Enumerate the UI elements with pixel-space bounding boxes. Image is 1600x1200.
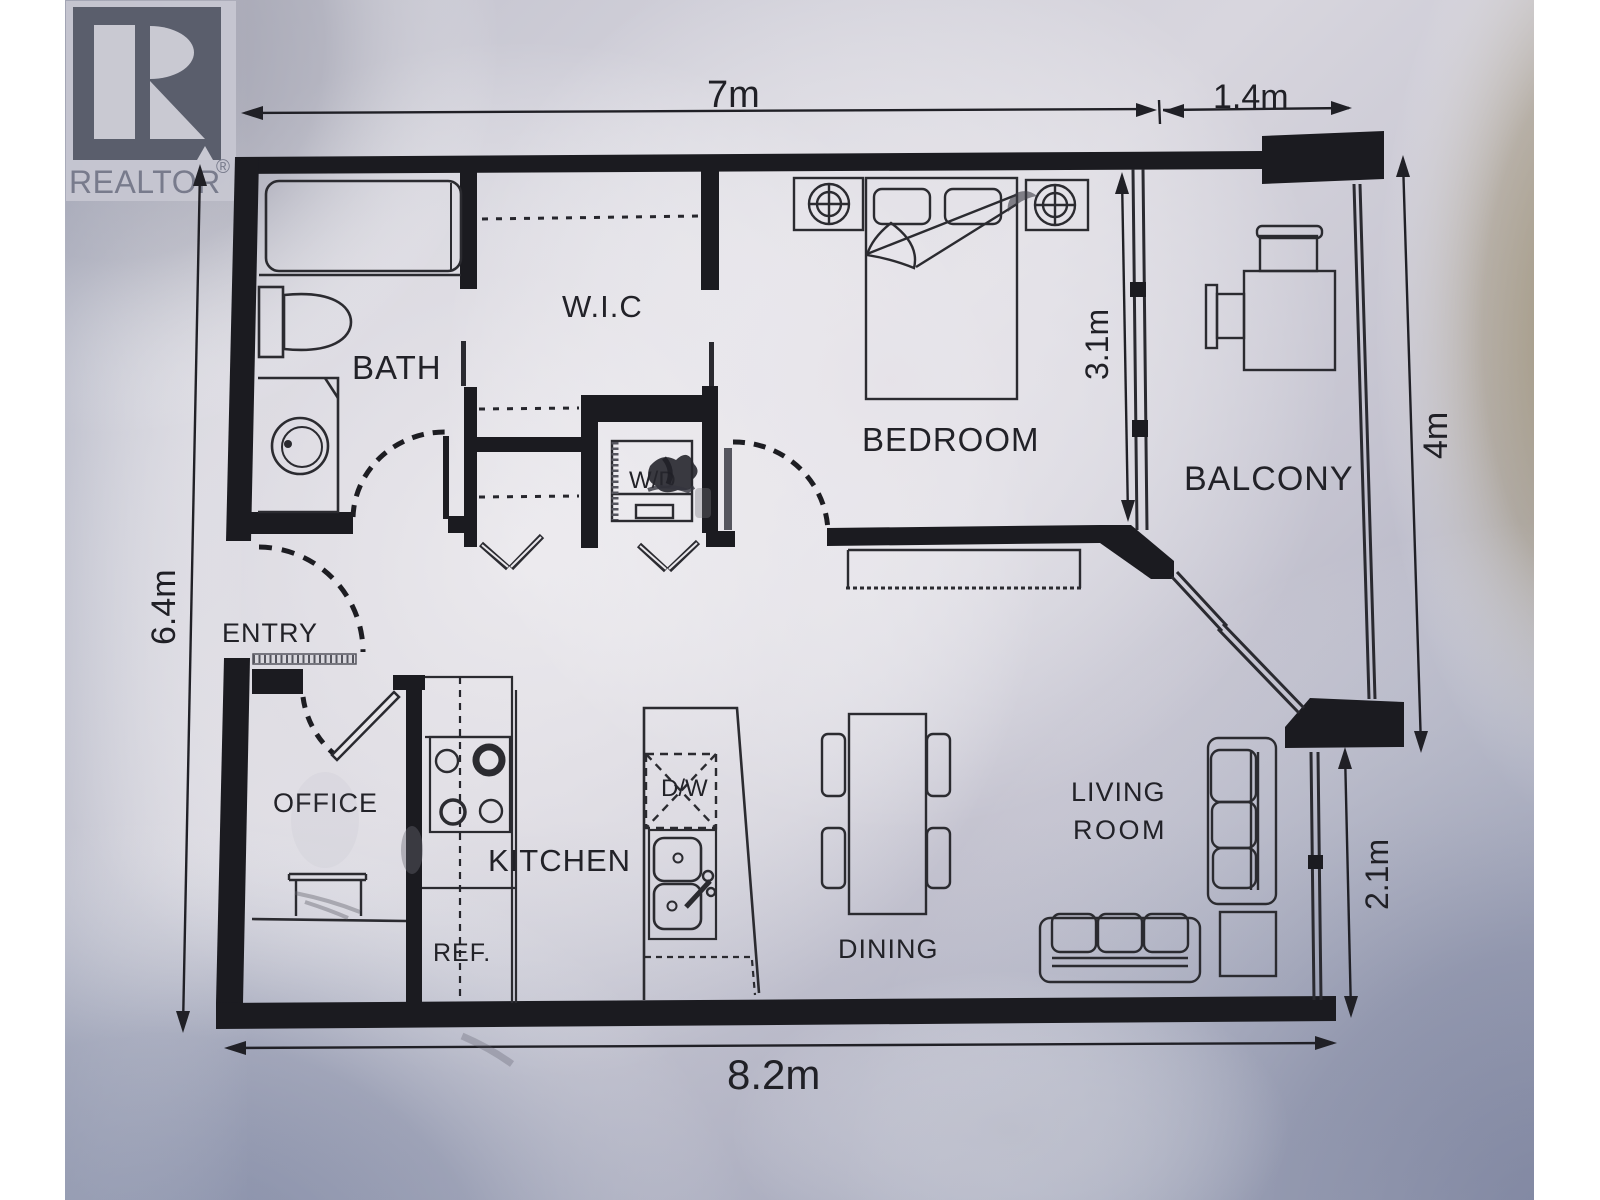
svg-text:1.4m: 1.4m xyxy=(1213,78,1289,116)
svg-text:®: ® xyxy=(216,157,230,178)
svg-text:DINING: DINING xyxy=(838,934,939,964)
svg-text:8.2m: 8.2m xyxy=(727,1051,820,1098)
svg-text:D/W: D/W xyxy=(661,775,708,802)
svg-text:4m: 4m xyxy=(1417,412,1455,459)
svg-text:BATH: BATH xyxy=(352,349,442,386)
svg-text:6.4m: 6.4m xyxy=(145,569,183,645)
svg-text:LIVING: LIVING xyxy=(1071,777,1166,807)
svg-text:REF.: REF. xyxy=(433,939,491,967)
svg-text:ENTRY: ENTRY xyxy=(222,618,318,648)
svg-text:ROOM: ROOM xyxy=(1073,815,1167,845)
svg-text:2.1m: 2.1m xyxy=(1359,839,1395,910)
svg-text:BEDROOM: BEDROOM xyxy=(862,421,1040,458)
svg-text:7m: 7m xyxy=(707,74,760,116)
svg-text:BALCONY: BALCONY xyxy=(1184,460,1354,498)
svg-text:W.I.C: W.I.C xyxy=(562,289,643,324)
svg-text:KITCHEN: KITCHEN xyxy=(488,843,631,878)
svg-text:3.1m: 3.1m xyxy=(1079,309,1115,380)
